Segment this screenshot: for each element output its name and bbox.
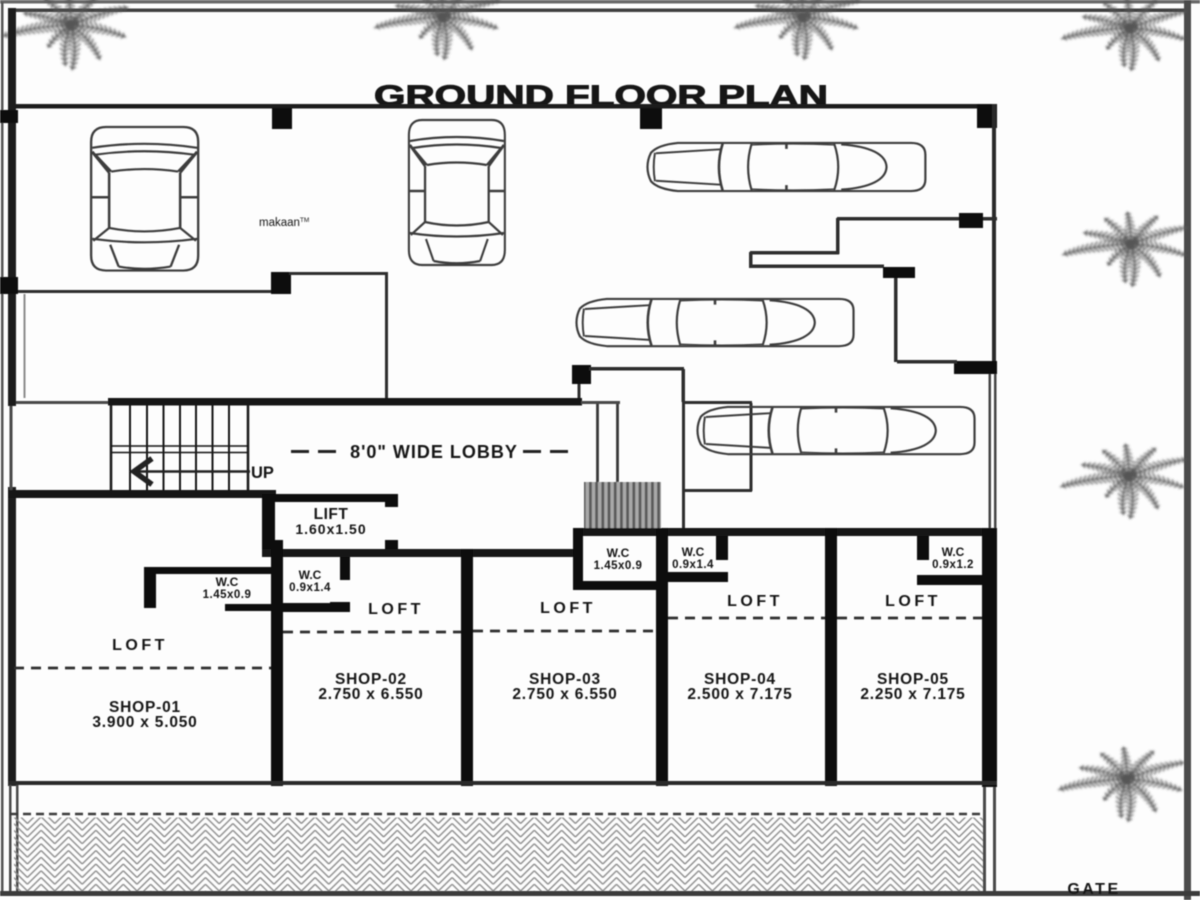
svg-text:W.C: W.C bbox=[299, 568, 322, 582]
svg-text:LOFT: LOFT bbox=[727, 593, 783, 610]
svg-text:2.750 x 6.550: 2.750 x 6.550 bbox=[318, 686, 423, 703]
svg-text:LOFT: LOFT bbox=[112, 637, 168, 654]
svg-text:2.750 x 6.550: 2.750 x 6.550 bbox=[512, 686, 617, 703]
svg-text:1.45x0.9: 1.45x0.9 bbox=[594, 560, 643, 572]
svg-text:W.C: W.C bbox=[682, 545, 705, 559]
svg-text:UP: UP bbox=[251, 464, 274, 482]
svg-text:0.9x1.4: 0.9x1.4 bbox=[289, 582, 331, 594]
svg-text:0.9x1.2: 0.9x1.2 bbox=[932, 559, 974, 571]
svg-text:LOFT: LOFT bbox=[540, 600, 596, 617]
svg-text:2.250 x 7.175: 2.250 x 7.175 bbox=[860, 686, 965, 703]
svg-text:1.45x0.9: 1.45x0.9 bbox=[203, 589, 252, 601]
svg-text:2.500 x 7.175: 2.500 x 7.175 bbox=[687, 686, 792, 703]
svg-text:1.60x1.50: 1.60x1.50 bbox=[295, 521, 366, 537]
svg-text:W.C: W.C bbox=[942, 545, 965, 559]
svg-text:3.900 x 5.050: 3.900 x 5.050 bbox=[92, 714, 197, 731]
svg-text:W.C: W.C bbox=[216, 575, 239, 589]
svg-text:W.C: W.C bbox=[607, 546, 630, 560]
svg-text:GATE: GATE bbox=[1067, 881, 1120, 898]
svg-text:LOFT: LOFT bbox=[368, 601, 424, 618]
svg-text:LOFT: LOFT bbox=[885, 593, 941, 610]
svg-text:0.9x1.4: 0.9x1.4 bbox=[672, 559, 714, 571]
svg-text:8'0" WIDE LOBBY: 8'0" WIDE LOBBY bbox=[350, 442, 518, 462]
